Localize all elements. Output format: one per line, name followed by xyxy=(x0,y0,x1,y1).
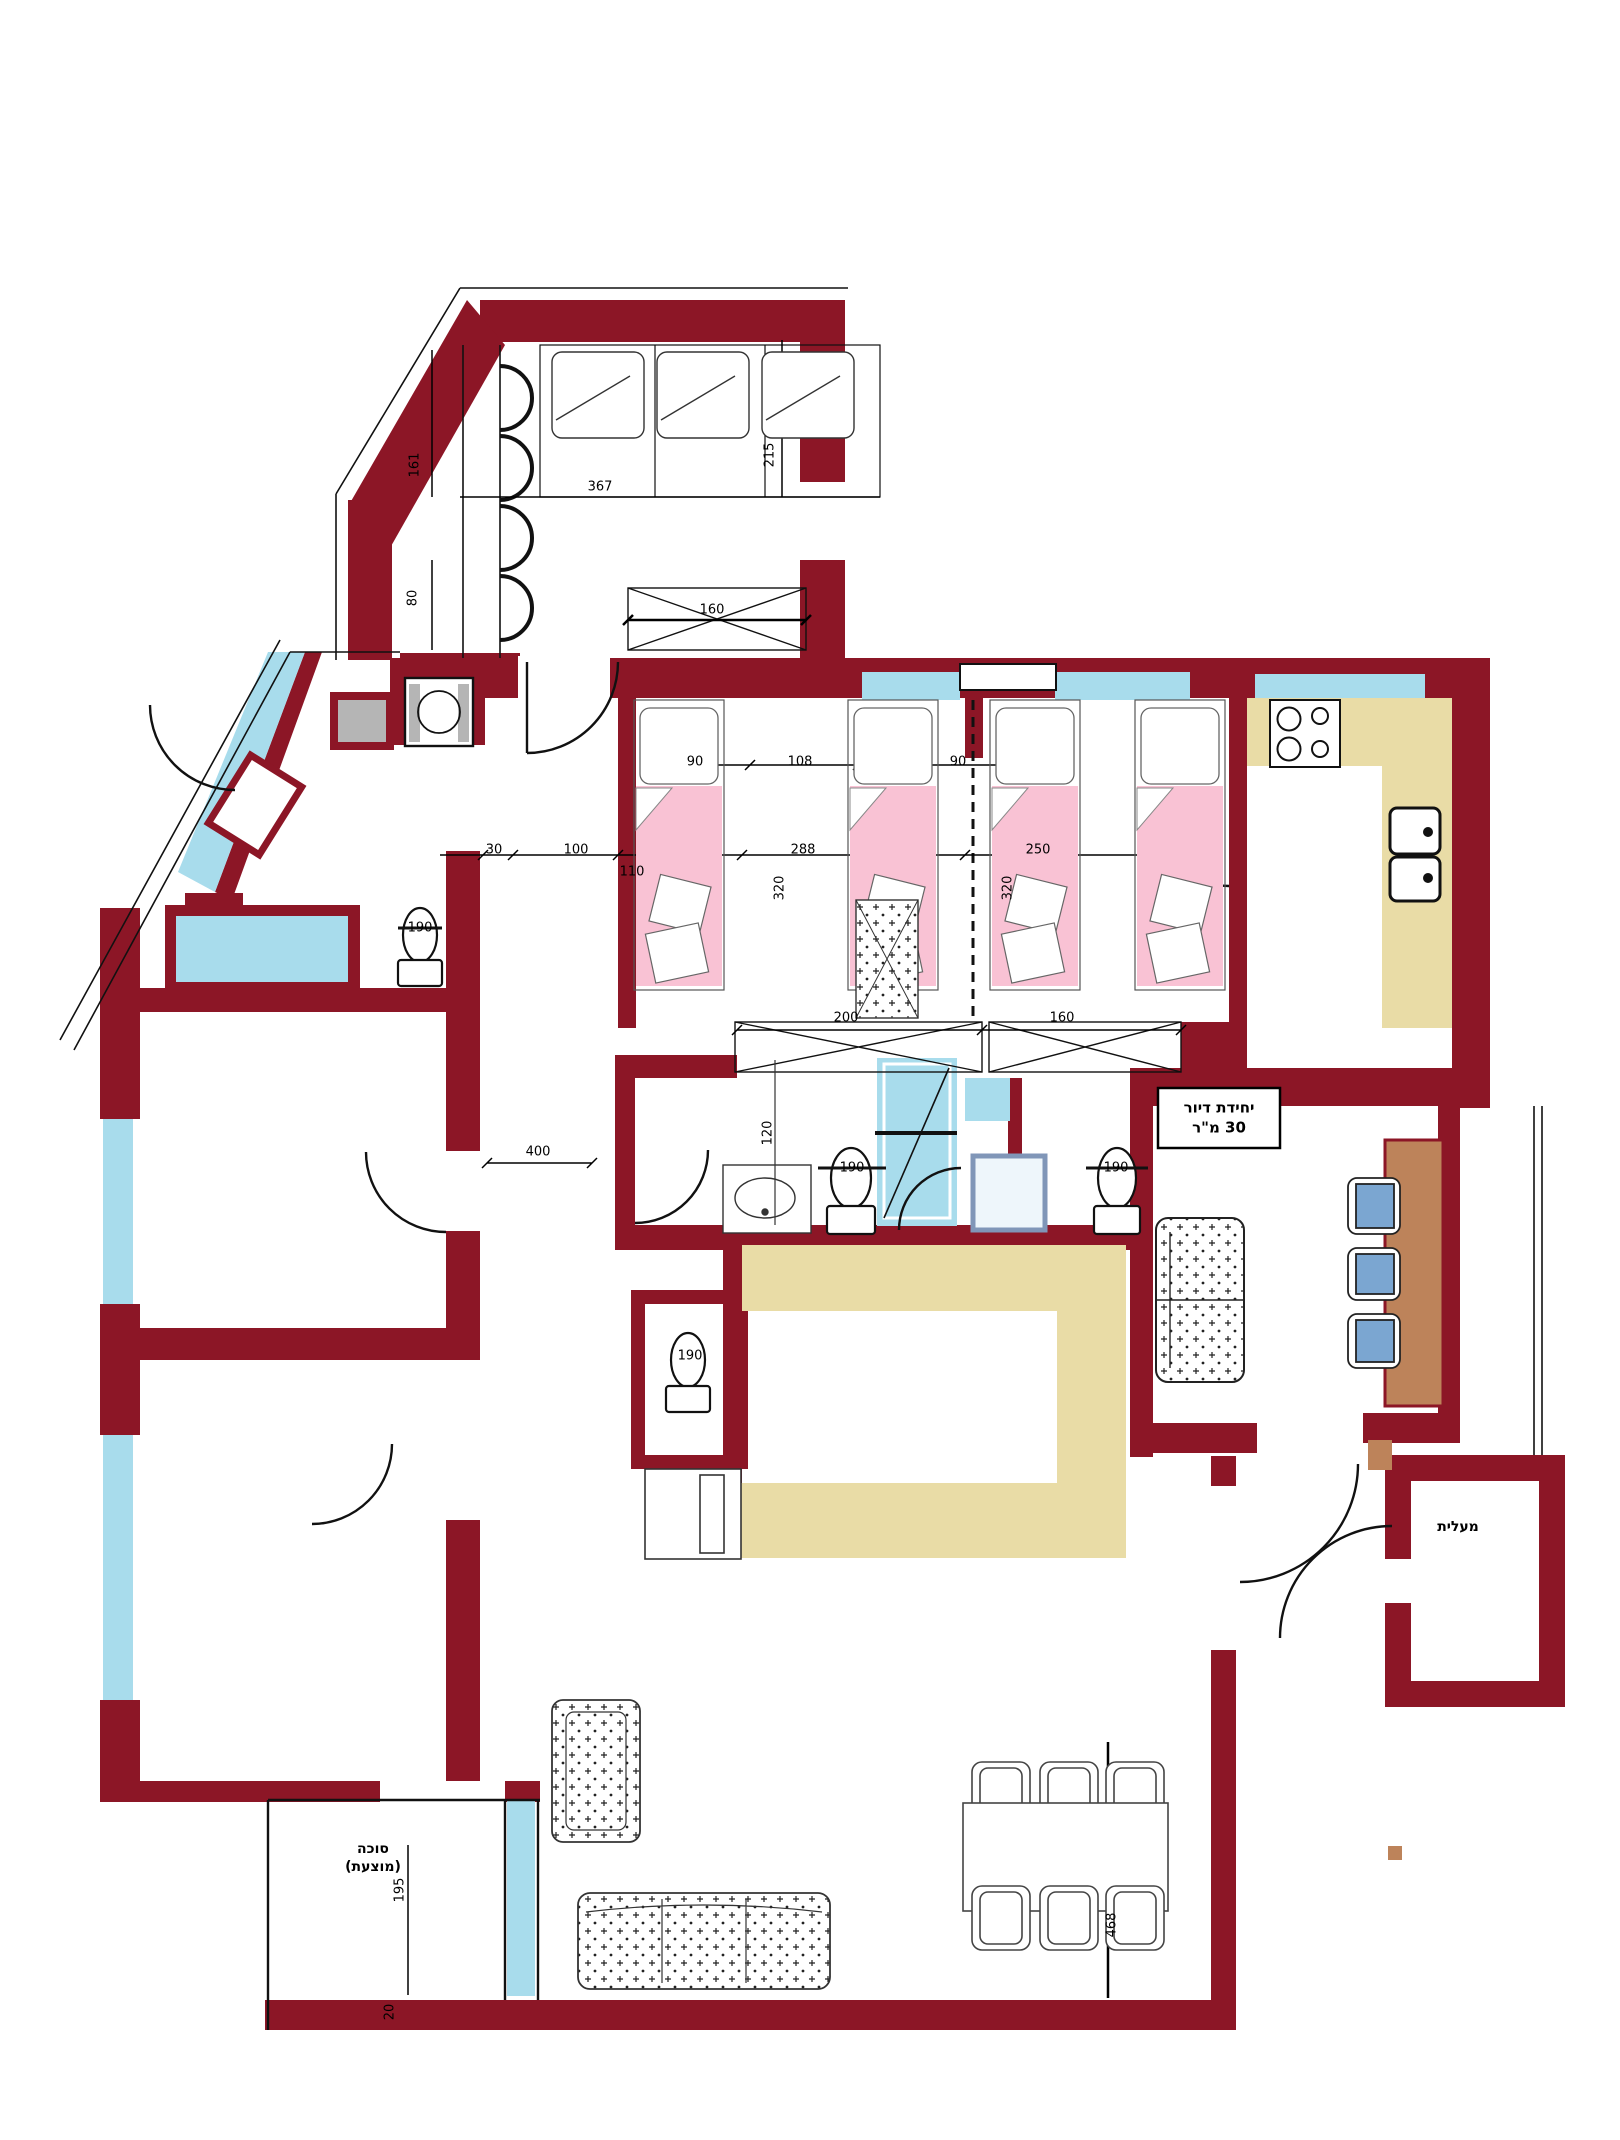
unit-room-label-line1: יחידת דיור xyxy=(1184,1099,1255,1119)
unit-shower xyxy=(973,1156,1045,1230)
bar-chairs xyxy=(1348,1178,1400,1368)
door-arc xyxy=(312,1444,392,1524)
dim-label: 200 xyxy=(834,1011,859,1026)
window xyxy=(103,1119,133,1304)
dim-label: 190 xyxy=(678,1349,703,1364)
dim-label: 110 xyxy=(620,865,645,880)
pouf xyxy=(856,900,918,1018)
vanity-sink xyxy=(723,1060,811,1233)
sukkah-label-line1: סוכה xyxy=(345,1840,401,1858)
door-arc xyxy=(635,1150,708,1223)
floor-plan: 161 367 215 80 160 90 108 90 30 100 110 … xyxy=(0,0,1620,2140)
chair xyxy=(1348,1248,1400,1300)
dim-label: 161 xyxy=(408,453,423,478)
unit-sofa xyxy=(1156,1218,1244,1382)
armchair xyxy=(552,1700,640,1842)
dim-label: 80 xyxy=(406,590,421,607)
window xyxy=(1255,674,1425,702)
dim-label: 90 xyxy=(950,755,967,770)
counter xyxy=(645,1469,741,1559)
washing-machine xyxy=(405,678,473,746)
door-arc xyxy=(366,1152,446,1232)
dim-label: 190 xyxy=(1104,1161,1129,1176)
dim-label: 250 xyxy=(1026,843,1051,858)
dim-label: 20 xyxy=(383,2004,398,2021)
dining-set xyxy=(963,1762,1168,1950)
dim-label: 120 xyxy=(761,1121,776,1146)
dim-label: 108 xyxy=(788,755,813,770)
double-bed-pillows xyxy=(552,352,854,438)
sukkah-label-line2: (מוצעת) xyxy=(345,1858,401,1876)
bed xyxy=(634,700,724,990)
sukkah-label: סוכה (מוצעת) xyxy=(345,1840,401,1876)
dim-label: 367 xyxy=(588,480,613,495)
dim-label: 215 xyxy=(763,443,778,468)
kitchen-sink xyxy=(1390,808,1440,901)
window xyxy=(103,1435,133,1700)
toilet xyxy=(666,1333,710,1412)
dim-label: 90 xyxy=(687,755,704,770)
dim-label: 160 xyxy=(1050,1011,1075,1026)
bed xyxy=(1135,700,1225,990)
dim-label: 320 xyxy=(773,876,788,901)
linework xyxy=(60,288,1542,2030)
balcony-window xyxy=(507,1800,535,1996)
chair xyxy=(1348,1178,1400,1234)
chair xyxy=(972,1886,1030,1950)
stove xyxy=(1270,700,1340,767)
window xyxy=(1055,672,1190,700)
dim-label: 100 xyxy=(564,843,589,858)
dim-label: 195 xyxy=(393,1878,408,1903)
floor-plan-drawing xyxy=(0,0,1620,2140)
dim-label: 190 xyxy=(840,1161,865,1176)
dim-label: 468 xyxy=(1105,1913,1120,1938)
single-beds xyxy=(634,700,1225,990)
dim-label: 160 xyxy=(700,603,725,618)
door-arc xyxy=(1280,1526,1392,1638)
dim-label: 288 xyxy=(791,843,816,858)
door-arc xyxy=(1240,1464,1358,1582)
chair xyxy=(1348,1314,1400,1368)
bathtub xyxy=(176,916,348,982)
dim-label: 400 xyxy=(526,1145,551,1160)
open-kitchen-counter xyxy=(741,1245,1126,1558)
sofa xyxy=(578,1893,830,1989)
dim-label: 30 xyxy=(486,843,503,858)
dim-label: 190 xyxy=(408,921,433,936)
chair xyxy=(1040,1886,1098,1950)
unit-room-label-line2: 30 מ"ר xyxy=(1184,1118,1255,1138)
dim-label: 320 xyxy=(1001,876,1016,901)
elevator-label: מעלית xyxy=(1437,1518,1479,1536)
shaft xyxy=(338,700,386,742)
window xyxy=(862,672,960,700)
unit-room-label: יחידת דיור 30 מ"ר xyxy=(1184,1099,1255,1138)
